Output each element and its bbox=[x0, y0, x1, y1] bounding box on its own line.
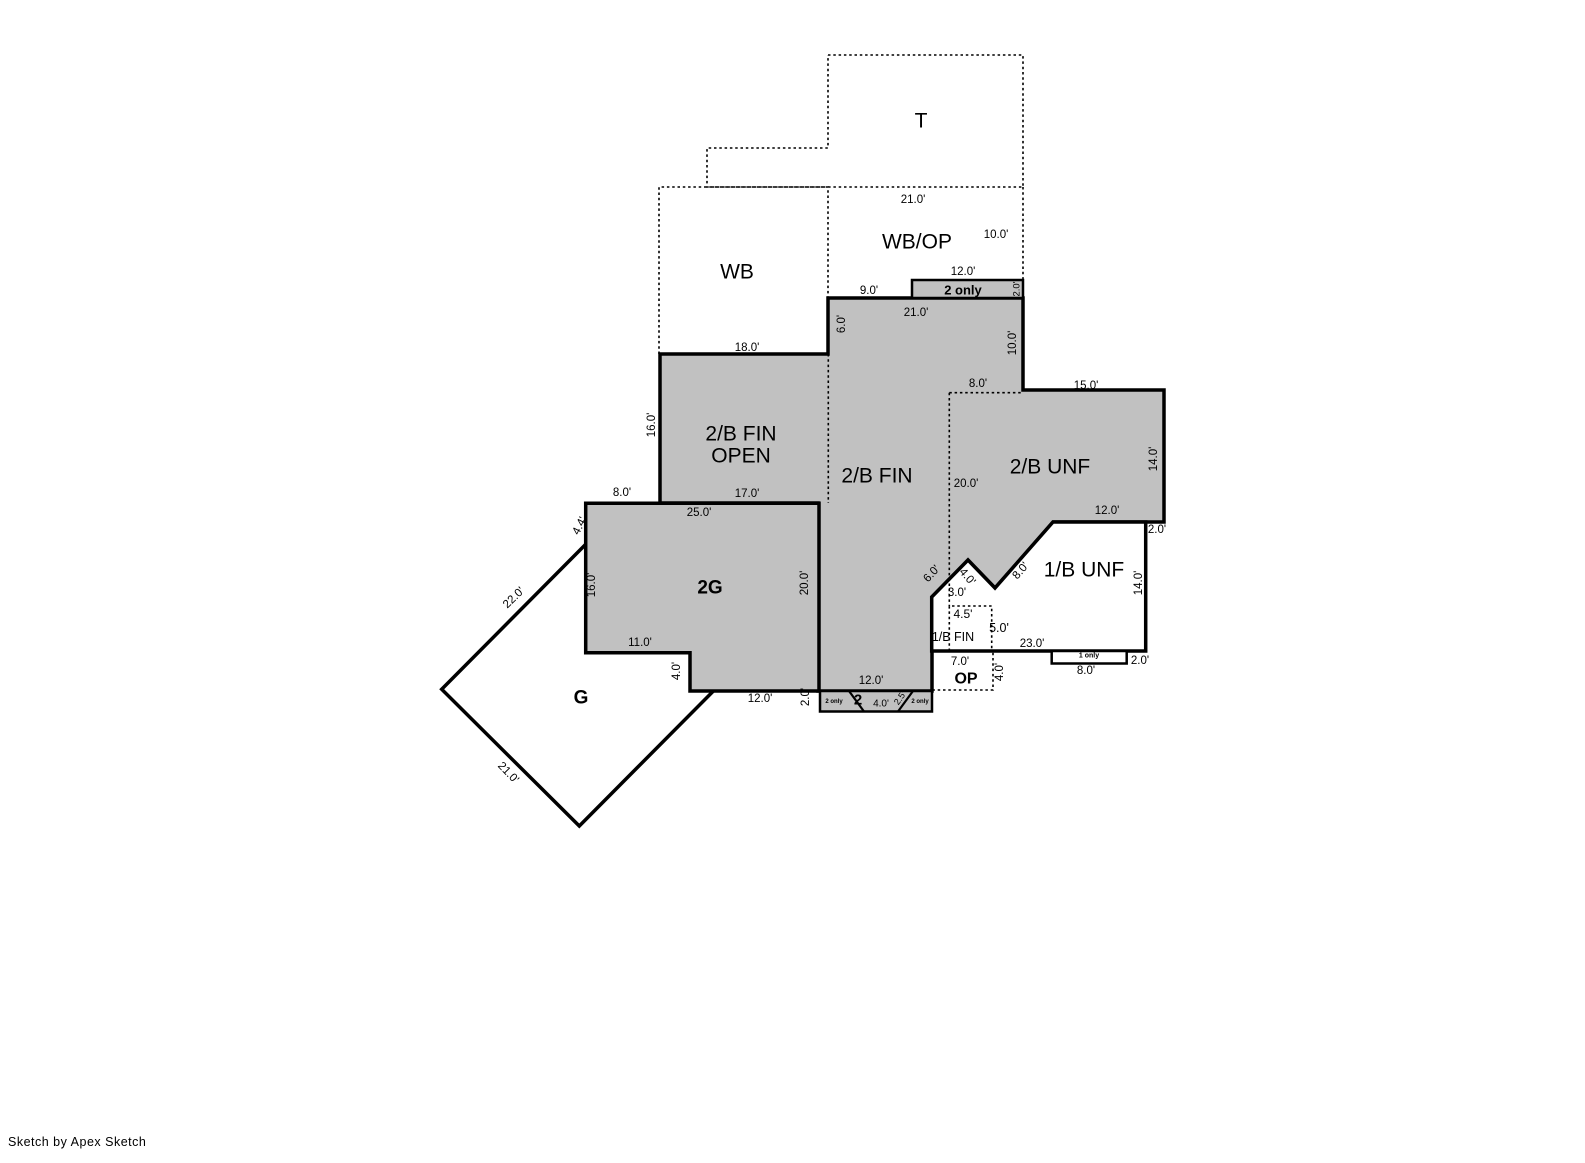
dim-2g-bottom-left: 11.0' bbox=[628, 637, 652, 649]
area-g: G bbox=[574, 688, 589, 709]
dim-fin-top-left: 9.0' bbox=[860, 285, 878, 297]
dim-strip-height: 2.0' bbox=[800, 688, 812, 706]
dim-1bfin-height: 5.0' bbox=[989, 621, 1009, 635]
dim-1only-height: 2.0' bbox=[1131, 655, 1149, 667]
dim-fin-top: 21.0' bbox=[904, 307, 929, 319]
dim-op-width: 7.0' bbox=[951, 656, 969, 668]
dim-zigzag-3ft: 3.0' bbox=[948, 587, 966, 599]
dim-fin-bottom: 12.0' bbox=[859, 675, 884, 687]
dim-wbop-top: 21.0' bbox=[901, 194, 926, 206]
dim-open-bottom: 17.0' bbox=[735, 488, 760, 500]
dim-1bfin-width: 4.5' bbox=[954, 607, 973, 621]
area-2bfin-open-line1: 2/B FIN bbox=[705, 423, 776, 446]
badge-2only-strip-left: 2 only bbox=[825, 699, 843, 705]
dim-2bunf-inset: 2.0' bbox=[1148, 524, 1166, 536]
dim-2only-upper-height: 2.0' bbox=[1012, 281, 1023, 296]
area-wbop: WB/OP bbox=[882, 231, 952, 254]
area-2bfin-open-line2: OPEN bbox=[711, 445, 771, 468]
dim-2bunf-right: 14.0' bbox=[1148, 447, 1160, 472]
badge-1only-strip: 1 only bbox=[1079, 653, 1099, 660]
dim-fin-unf-divider: 20.0' bbox=[954, 478, 979, 490]
dim-1only-width: 8.0' bbox=[1077, 665, 1095, 677]
area-2bfin: 2/B FIN bbox=[841, 465, 912, 488]
area-1bunf: 1/B UNF bbox=[1044, 559, 1125, 582]
area-t: T bbox=[915, 110, 928, 133]
dim-wbop-right: 10.0' bbox=[984, 229, 1009, 241]
area-2bunf: 2/B UNF bbox=[1010, 456, 1091, 479]
area-wb: WB bbox=[720, 261, 754, 284]
dim-1bunf-right: 14.0' bbox=[1133, 571, 1145, 596]
sketch-credit: Sketch by Apex Sketch bbox=[8, 1135, 146, 1149]
area-op: OP bbox=[954, 671, 977, 688]
dim-2bunf-bottom: 12.0' bbox=[1095, 505, 1120, 517]
dim-2bunf-top: 15.0' bbox=[1074, 380, 1099, 392]
dim-fin-left-upper: 6.0' bbox=[836, 315, 848, 333]
floorplan-canvas: TWBWB/OP2/B FINOPEN2/B FIN2/B UNF1/B UNF… bbox=[0, 0, 1585, 1163]
dim-2g-top: 25.0' bbox=[687, 507, 712, 519]
area-2g: 2G bbox=[697, 578, 722, 599]
dim-2g-top-left: 8.0' bbox=[613, 487, 631, 499]
area-1bfin: 1/B FIN bbox=[932, 630, 974, 644]
dim-open-left: 16.0' bbox=[646, 413, 658, 438]
dim-op-height: 4.0' bbox=[994, 663, 1006, 681]
dim-2g-bottom-right: 12.0' bbox=[748, 693, 773, 705]
dim-2only-upper-width: 12.0' bbox=[951, 266, 976, 278]
badge-2only-upper: 2 only bbox=[944, 283, 982, 298]
badge-2-strip: 2 bbox=[854, 692, 862, 709]
badge-2only-strip-right: 2 only bbox=[911, 699, 929, 705]
dim-open-top: 18.0' bbox=[735, 342, 760, 354]
dim-fin-left-lower: 20.0' bbox=[799, 571, 811, 596]
dim-unf-dotted-top: 8.0' bbox=[969, 378, 987, 390]
dim-2g-left: 16.0' bbox=[586, 573, 598, 598]
dim-fin-right-upper: 10.0' bbox=[1007, 331, 1019, 356]
dim-1bunf-bottom: 23.0' bbox=[1020, 638, 1045, 650]
floorplan-page: TWBWB/OP2/B FINOPEN2/B FIN2/B UNF1/B UNF… bbox=[0, 0, 1585, 1163]
dim-strip-4ft: 4.0' bbox=[873, 699, 889, 710]
attic-t-outline bbox=[707, 55, 1023, 187]
dim-2g-step: 4.0' bbox=[671, 662, 683, 680]
